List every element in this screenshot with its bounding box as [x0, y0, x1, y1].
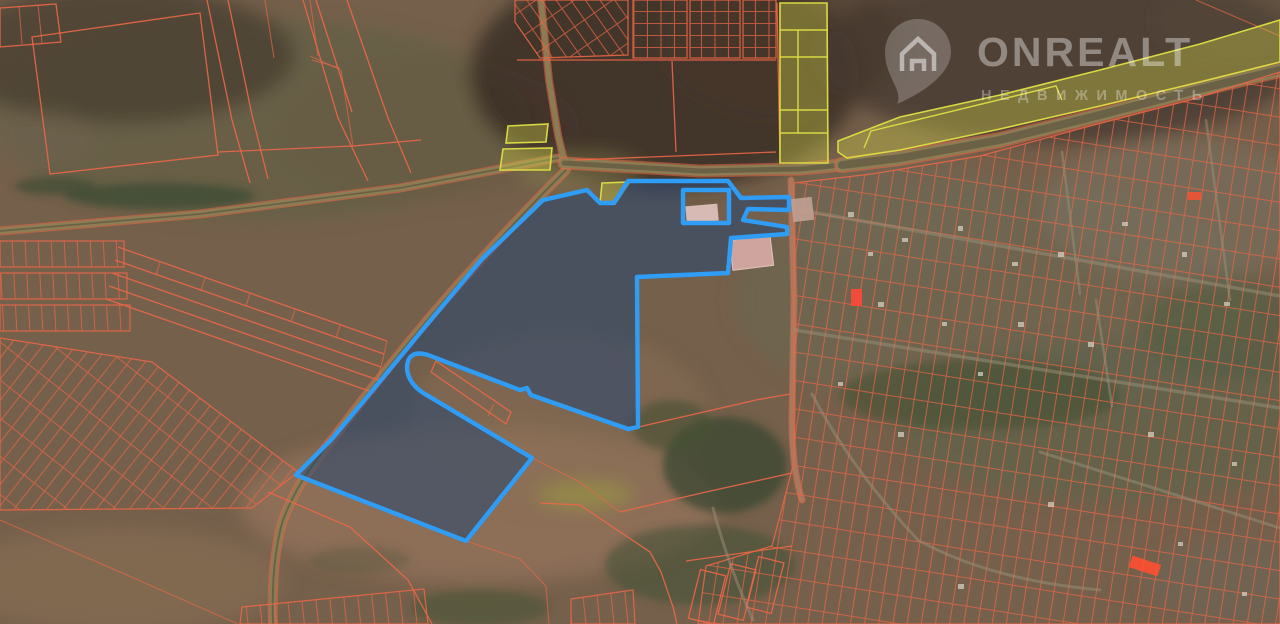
- pink-roof-building: [729, 236, 773, 271]
- watermark-subtitle: НЕДВИЖИМОСТЬ: [981, 88, 1211, 104]
- building-in-hole: [685, 204, 718, 224]
- map-canvas[interactable]: ONREALT НЕДВИЖИМОСТЬ: [0, 0, 1280, 624]
- yellow-parcel-junction-b[interactable]: [500, 148, 552, 170]
- yellow-parcel-junction-a[interactable]: [506, 124, 548, 143]
- building-northeast: [791, 197, 815, 222]
- watermark-brand: ONREALT: [977, 29, 1193, 75]
- yellow-parcel-column[interactable]: [780, 3, 828, 163]
